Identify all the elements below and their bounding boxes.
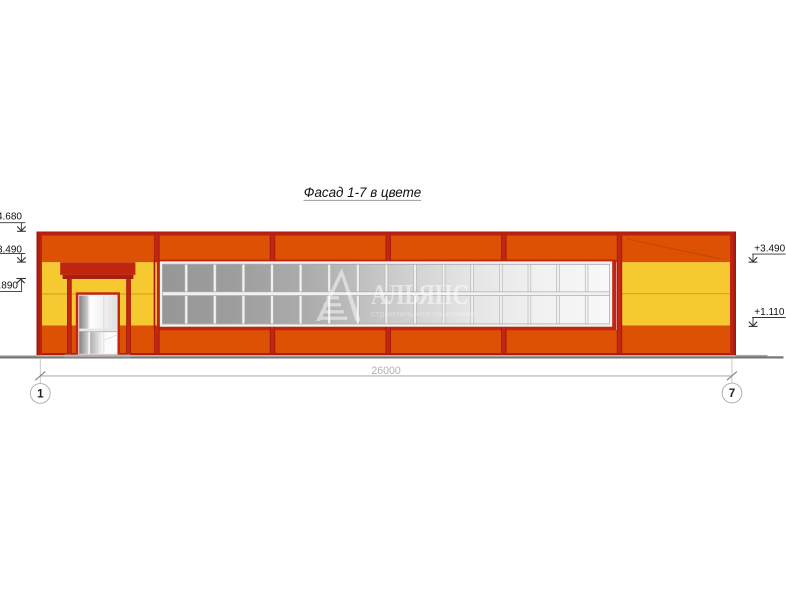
svg-text:+1.890: +1.890 (0, 280, 18, 291)
svg-text:строительная компания: строительная компания (371, 310, 475, 319)
svg-text:+1.110: +1.110 (754, 307, 785, 318)
svg-text:26000: 26000 (371, 365, 401, 377)
svg-text:+4.680: +4.680 (0, 211, 22, 222)
svg-text:АЛЬЯНС: АЛЬЯНС (371, 279, 469, 311)
svg-text:1: 1 (37, 388, 44, 401)
svg-text:Фасад 1-7 в цвете: Фасад 1-7 в цвете (304, 185, 421, 200)
svg-text:7: 7 (729, 387, 735, 400)
svg-text:+3.490: +3.490 (754, 244, 785, 255)
